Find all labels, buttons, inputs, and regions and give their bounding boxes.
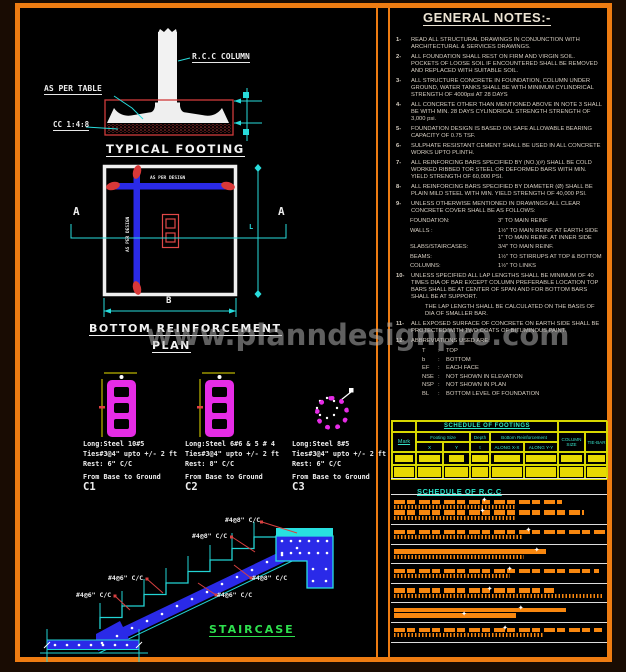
length-dim-label: L (249, 223, 253, 231)
rcc-schedule-group: ✦ (391, 545, 607, 565)
general-note: 8-ALL REINFORCING BARS SPECIFIED BY DIAM… (396, 184, 604, 198)
schedule-cell (558, 465, 585, 479)
general-note: 4-ALL CONCRETE OTHER THAN MENTIONED ABOV… (396, 102, 604, 123)
col-header-footing-size: Footing Size (416, 432, 470, 442)
col-header-depth: Depth (470, 432, 490, 442)
rcc-schedule-entry: ✦ (394, 613, 516, 618)
c2-mark: C2 (185, 482, 289, 493)
c2-ties: Ties#3@4" upto +/- 2 ft (185, 449, 289, 459)
schedule-cell (416, 452, 443, 465)
general-note: 10-UNLESS SPECIFIED ALL LAP LENGTHS SHAL… (396, 273, 604, 301)
cover-spec-row: WALLS :1½" TO MAIN REINF. AT EARTH SIDE … (410, 228, 604, 242)
cover-spec-row: COLUMNS:1½" TO LINKS (410, 263, 604, 270)
stair-rebar-label-2: #4@8" C/C (192, 532, 227, 540)
rcc-schedule-entry (394, 516, 516, 520)
schedule-cell (443, 452, 470, 465)
c1-mark: C1 (83, 482, 187, 493)
general-note: 5-FOUNDATION DESIGN IS BASED ON SAFE ALL… (396, 126, 604, 140)
schedule-cell (524, 452, 558, 465)
rcc-schedule-entry: ✦ (394, 510, 584, 515)
abbreviation-row: T:TOP (422, 348, 604, 355)
rcc-schedule-entry (394, 535, 522, 539)
abbreviation-row: EF:EACH FACE (422, 365, 604, 372)
sub-header-t: t (470, 442, 490, 452)
schedule-cell (490, 452, 524, 465)
rcc-schedule-entry (394, 555, 524, 559)
schedule-cell (585, 452, 608, 465)
rcc-schedule-group: ✦ (391, 623, 607, 643)
c3-ties: Ties#3@4" upto +/- 2 ft (292, 449, 396, 459)
rcc-schedule-entry: ✦ (394, 628, 602, 633)
reinforcement-plan-drawing (71, 164, 286, 317)
sub-header-y: Y (443, 442, 470, 452)
plan-title-line1: BOTTOM REINFORCEMENT (89, 322, 282, 336)
as-per-table-label: AS PER TABLE (44, 84, 102, 95)
c2-long-steel: Long:Steel 6#6 & 5 # 4 (185, 439, 289, 449)
general-note: THE LAP LENGTH SHALL BE CALCULATED ON TH… (396, 304, 604, 318)
width-dim-label: B (166, 296, 171, 306)
column-detail-c3: Long:Steel 8#5 Ties#3@4" upto +/- 2 ft R… (292, 439, 396, 493)
schedule-cell (490, 465, 524, 479)
col-header-column-size: COLUMN SIZE (558, 432, 585, 452)
cc-ratio-label: CC 1:4:8 (53, 120, 89, 131)
sub-header-along-xx: ALONG X-X (490, 442, 524, 452)
general-note: 1-READ ALL STRUCTURAL DRAWINGS IN CONJUN… (396, 37, 604, 51)
plan-title-line2: PLAN (152, 339, 191, 353)
rcc-schedule-group: ✦ (391, 564, 607, 584)
general-note: 2-ALL FOUNDATION SHALL REST ON FIRM AND … (396, 54, 604, 75)
c3-rest: Rest: 6" C/C (292, 459, 396, 469)
rcc-schedule-entry (394, 594, 604, 598)
rcc-schedule-entry: ✦ (394, 608, 566, 613)
rcc-column-label: R.C.C COLUMN (192, 52, 250, 63)
general-note: 9-UNLESS OTHERWISE MENTIONED IN DRAWINGS… (396, 201, 604, 215)
abbreviation-row: BL:BOTTOM LEVEL OF FOUNDATION (422, 391, 604, 398)
schedule-cell (392, 421, 416, 432)
column-detail-c1: Long:Steel 10#5 Ties#3@4" upto +/- 2 ft … (83, 439, 187, 493)
rcc-schedule-entry (394, 633, 544, 637)
col-header-bottom-reinf: Bottom Reinforcement (490, 432, 558, 442)
col-header-tie-bar: TIE-BAR (585, 432, 608, 452)
section-mark-left: A (73, 205, 80, 218)
abbreviation-row: b:BOTTOM (422, 357, 604, 364)
schedule-cell (392, 465, 416, 479)
column-section-c2 (205, 380, 234, 437)
c3-mark: C3 (292, 482, 396, 493)
general-note: 11-ALL EXPOSED SURFACE OF CONCRETE ON EA… (396, 321, 604, 335)
c1-rest: Rest: 6" C/C (83, 459, 187, 469)
bar-label-y: AS PER DESIGN (126, 217, 131, 252)
rcc-schedule-entry: ✦ (394, 549, 546, 554)
c3-long-steel: Long:Steel 8#5 (292, 439, 396, 449)
rcc-schedule-group: ✦ (391, 584, 607, 604)
rcc-schedule-entry: ✦ (394, 569, 599, 574)
sub-header-x: X (416, 442, 443, 452)
footing-schedule-title: SCHEDULE OF FOOTINGS (416, 421, 558, 432)
cover-spec-row: BEAMS:1½" TO STIRRUPS AT TOP & BOTTOM (410, 254, 604, 261)
schedule-cell (443, 465, 470, 479)
schedule-cell (558, 452, 585, 465)
rcc-schedule-entry: ✦ (394, 500, 562, 505)
general-note: 6-SULPHATE RESISTANT CEMENT SHALL BE USE… (396, 143, 604, 157)
col-header-mark: Mark (392, 432, 416, 452)
rcc-schedule-title: SCHEDULE OF R.C.C (417, 487, 502, 496)
general-note: 3-ALL STRUCTURE CONCRETE IN FOUNDATION, … (396, 78, 604, 99)
schedule-cell (416, 465, 443, 479)
typical-footing-drawing (86, 28, 262, 141)
rcc-rows: ✦✦✦✦✦✦✦✦✦ (391, 495, 607, 643)
schedule-cell (524, 465, 558, 479)
bar-label-x: AS PER DESIGN (150, 176, 185, 181)
schedule-cell (585, 465, 608, 479)
sub-header-along-yy: ALONG Y-Y (524, 442, 558, 452)
rcc-schedule: SCHEDULE OF R.C.C ✦✦✦✦✦✦✦✦✦ (391, 478, 607, 643)
c3-range: From Base to Ground (292, 472, 396, 482)
general-note: 12-ABBREVIATIONS USED ARE: (396, 338, 604, 345)
general-note: 7-ALL REINFORCING BARS SPECIFIED BY (NO.… (396, 160, 604, 181)
c2-rest: Rest: 8" C/C (185, 459, 289, 469)
rcc-schedule-group: ✦ (391, 525, 607, 545)
staircase-title: STAIRCASE (209, 623, 295, 637)
cover-spec-row: FOUNDATION:3" TO MAIN REINF (410, 218, 604, 225)
rcc-schedule-group: ✦✦ (391, 495, 607, 525)
column-detail-c2: Long:Steel 6#6 & 5 # 4 Ties#3@4" upto +/… (185, 439, 289, 493)
rcc-schedule-entry (394, 505, 516, 509)
rcc-schedule-titlebar: SCHEDULE OF R.C.C (391, 478, 607, 495)
c1-long-steel: Long:Steel 10#5 (83, 439, 187, 449)
c2-range: From Base to Ground (185, 472, 289, 482)
rcc-schedule-entry: ✦ (394, 530, 606, 535)
cover-spec-row: SLABS/STAIRCASES:3/4" TO MAIN REINF. (410, 244, 604, 251)
stair-rebar-label-3: #4@8" C/C (252, 574, 287, 582)
column-section-c3 (315, 396, 349, 430)
stair-rebar-label-6: #4@6" C/C (76, 591, 111, 599)
rcc-schedule-entry: ✦ (394, 588, 554, 593)
schedule-cell (470, 465, 490, 479)
column-section-c1 (107, 380, 136, 437)
stair-rebar-label-1: #4@8" C/C (225, 516, 260, 524)
schedule-cell (558, 421, 608, 432)
rcc-schedule-group: ✦✦ (391, 603, 607, 623)
footing-schedule-table: SCHEDULE OF FOOTINGS Mark Footing Size D… (391, 420, 607, 480)
schedule-cell (392, 452, 416, 465)
schedule-cell (470, 452, 490, 465)
stair-rebar-label-4: #4@6" C/C (217, 591, 252, 599)
cad-sheet: { "watermark": "www.planndesignpro.com",… (0, 0, 626, 672)
notes-list: 1-READ ALL STRUCTURAL DRAWINGS IN CONJUN… (396, 34, 604, 399)
stair-rebar-label-5: #4@6" C/C (108, 574, 143, 582)
c1-ties: Ties#3@4" upto +/- 2 ft (83, 449, 187, 459)
abbreviation-row: NSE:NOT SHOWN IN ELEVATION (422, 374, 604, 381)
rcc-schedule-entry (394, 574, 510, 578)
typical-footing-title: TYPICAL FOOTING (106, 142, 245, 157)
section-mark-right: A (278, 205, 285, 218)
abbreviation-row: NSP:NOT SHOWN IN PLAN (422, 382, 604, 389)
c1-range: From Base to Ground (83, 472, 187, 482)
general-notes-title: GENERAL NOTES:- (423, 10, 551, 26)
